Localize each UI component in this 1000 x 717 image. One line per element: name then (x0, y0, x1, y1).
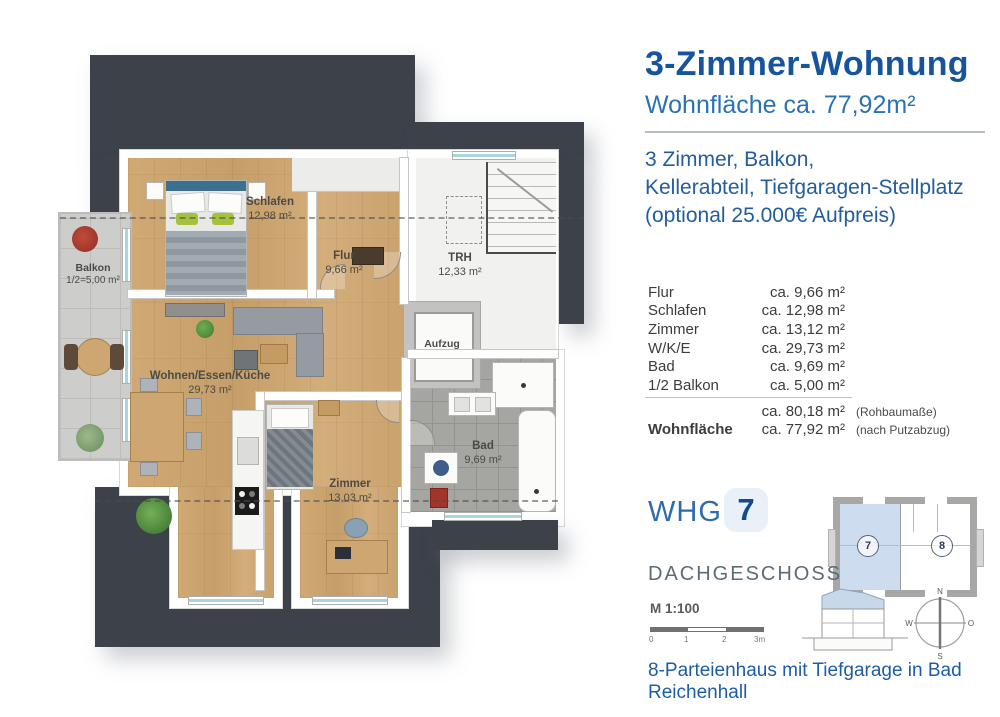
shower (492, 362, 554, 408)
laptop (335, 547, 351, 559)
description: 3 Zimmer, Balkon, Kellerabteil, Tiefgara… (645, 146, 990, 230)
single-bed-pillow (271, 408, 309, 428)
divider-line (645, 131, 985, 133)
pillow-left (170, 192, 205, 214)
floor-balkon (58, 212, 132, 461)
scale-bar-segment (688, 627, 726, 632)
room-area: 9,69 m² (438, 454, 528, 467)
table-row-value: ca. 12,98 m² (700, 302, 845, 319)
roof-slab-right (558, 160, 584, 324)
elevation-basement (814, 638, 892, 650)
cooktop-burner (249, 491, 255, 497)
room-name: Bad (472, 440, 494, 452)
double-sink (448, 392, 496, 416)
plant-small (196, 320, 214, 338)
scale-label: M 1:100 (650, 601, 700, 616)
balkon-chair-left (64, 344, 78, 370)
table-divider (645, 397, 852, 398)
table-subtotal-note: (Rohbaumaße) (856, 405, 937, 419)
elevation-roof (822, 589, 884, 609)
page-subtitle: Wohnfläche ca. 77,92m² (645, 91, 916, 120)
room-area: 12,98 m² (205, 210, 335, 223)
footer-text: 8-Parteienhaus mit Tiefgarage in Bad Rei… (648, 660, 1000, 704)
zimmer-dresser (318, 400, 340, 416)
table-row-label: W/K/E (648, 340, 691, 357)
stairs (486, 162, 556, 254)
scale-tick: 3m (754, 635, 765, 644)
kitchen-counter (232, 410, 264, 550)
key-plan: 7 8 (833, 497, 977, 597)
room-name: Aufzug (424, 338, 460, 350)
room-area: 29,73 m² (135, 384, 285, 397)
cushion-left (176, 213, 198, 225)
key-plan-unit8-number: 8 (931, 535, 953, 557)
key-plan-balcony-left (828, 529, 836, 567)
table-total-note: (nach Putzabzug) (856, 423, 950, 437)
table-row-label: Zimmer (648, 321, 699, 338)
unit-label: WHG (648, 496, 722, 529)
sink-basin-right (475, 397, 491, 412)
window-trh-top (452, 151, 516, 160)
plant-large (136, 498, 172, 534)
table-row-value: ca. 5,00 m² (700, 377, 845, 394)
scale-tick: 2 (722, 635, 726, 644)
page-title: 3-Zimmer-Wohnung (645, 45, 969, 84)
desk (326, 540, 388, 574)
kitchen-sink (237, 437, 259, 465)
table-row-value: ca. 9,69 m² (700, 358, 845, 375)
bathtub-faucet (534, 489, 539, 494)
dining-chair-1 (186, 398, 202, 416)
table-row-value: ca. 13,12 m² (700, 321, 845, 338)
table-row-label: Bad (648, 358, 675, 375)
room-label-trh: TRH 12,33 m² (420, 252, 500, 279)
wall-bad-left (402, 358, 410, 512)
cooktop-burner (239, 503, 245, 509)
key-plan-wall (900, 504, 901, 590)
sink-basin-left (454, 397, 470, 412)
dining-chair-4 (140, 462, 158, 476)
schlafen-alcove (292, 158, 408, 192)
laundry-basket (430, 488, 448, 508)
window-bad-bottom (444, 512, 522, 521)
cooktop-burner (249, 503, 255, 509)
room-name: Schlafen (246, 196, 294, 208)
room-label-schlafen: Schlafen 12,98 m² (205, 196, 335, 223)
compass-west-label: W (905, 619, 913, 628)
key-plan-dormer-notch (925, 496, 947, 504)
compass-north-label: N (937, 587, 943, 596)
desk-chair (344, 518, 368, 538)
key-plan-balcony-right (976, 529, 984, 567)
key-plan-unit7-number: 7 (857, 535, 879, 557)
room-label-zimmer: Zimmer 13,03 m² (300, 478, 400, 505)
room-area: 1/2=5,00 m² (56, 275, 130, 287)
table-row-value: ca. 29,73 m² (700, 340, 845, 357)
room-label-bad: Bad 9,69 m² (438, 440, 528, 467)
building-elevation-icon (800, 583, 910, 653)
tv-sideboard (165, 303, 225, 317)
room-area: 13,03 m² (300, 492, 400, 505)
table-row-label: Flur (648, 284, 674, 301)
room-name: TRH (448, 252, 472, 264)
description-line: Kellerabteil, Tiefgaragen-Stellplatz (645, 174, 990, 202)
room-label-aufzug: Aufzug (404, 338, 480, 351)
key-plan-dormer-notch (863, 496, 885, 504)
armchair (234, 350, 258, 370)
scale-bar-segment (650, 627, 688, 632)
room-area: 12,33 m² (420, 266, 500, 279)
table-row-value: ca. 9,66 m² (700, 284, 845, 301)
stairs-headroom-dashed (446, 196, 482, 244)
floorplan: Schlafen 12,98 m² Flur 9,66 m² TRH 12,33… (0, 0, 640, 717)
unit-number-badge: 7 (724, 488, 768, 532)
room-label-wohnen: Wohnen/Essen/Küche 29,73 m² (135, 370, 285, 397)
shower-drain (521, 383, 526, 388)
wall-flur-trh (400, 158, 408, 304)
coffee-table (260, 344, 288, 364)
flyer-page: Schlafen 12,98 m² Flur 9,66 m² TRH 12,33… (0, 0, 1000, 717)
bed-blanket (166, 231, 246, 295)
room-name: Zimmer (329, 478, 371, 490)
compass: N O S W (903, 585, 977, 661)
bed-headboard (166, 181, 246, 191)
wall-bad-top (408, 350, 558, 358)
balkon-chair-right (110, 344, 124, 370)
roof-slab-top-left (90, 55, 415, 160)
sofa-horizontal (233, 307, 323, 335)
cooktop-burner (239, 491, 245, 497)
table-total-value: ca. 77,92 m² (700, 421, 845, 438)
room-area: 9,66 m² (304, 264, 384, 277)
key-plan-wall (937, 504, 938, 532)
window-dormer-zimmer (312, 596, 388, 605)
room-name: Flur (333, 250, 355, 262)
dining-table (130, 392, 184, 462)
roof-slab-left (90, 160, 122, 214)
balkon-plant-green (76, 424, 104, 452)
room-label-balkon: Balkon 1/2=5,00 m² (56, 262, 130, 287)
scale-bar-segment (726, 627, 764, 632)
room-label-flur: Flur 9,66 m² (304, 250, 384, 277)
scale-bar (650, 627, 764, 632)
key-plan-wall (913, 504, 914, 532)
room-name: Wohnen/Essen/Küche (150, 370, 271, 382)
sofa-vertical (296, 333, 324, 377)
table-row-label: Schlafen (648, 302, 706, 319)
table-subtotal-value: ca. 80,18 m² (700, 403, 845, 420)
description-line: (optional 25.000€ Aufpreis) (645, 202, 990, 230)
balkon-plant-red (72, 226, 98, 252)
scale-tick: 0 (649, 635, 653, 644)
compass-east-label: O (968, 619, 974, 628)
dining-chair-2 (186, 432, 202, 450)
balkon-table (76, 338, 114, 376)
window-dormer-living (188, 596, 264, 605)
room-name: Balkon (75, 262, 110, 274)
description-line: 3 Zimmer, Balkon, (645, 146, 990, 174)
scale-tick: 1 (684, 635, 688, 644)
nightstand-left (146, 182, 164, 200)
roof-slab-below-bad (432, 520, 558, 550)
